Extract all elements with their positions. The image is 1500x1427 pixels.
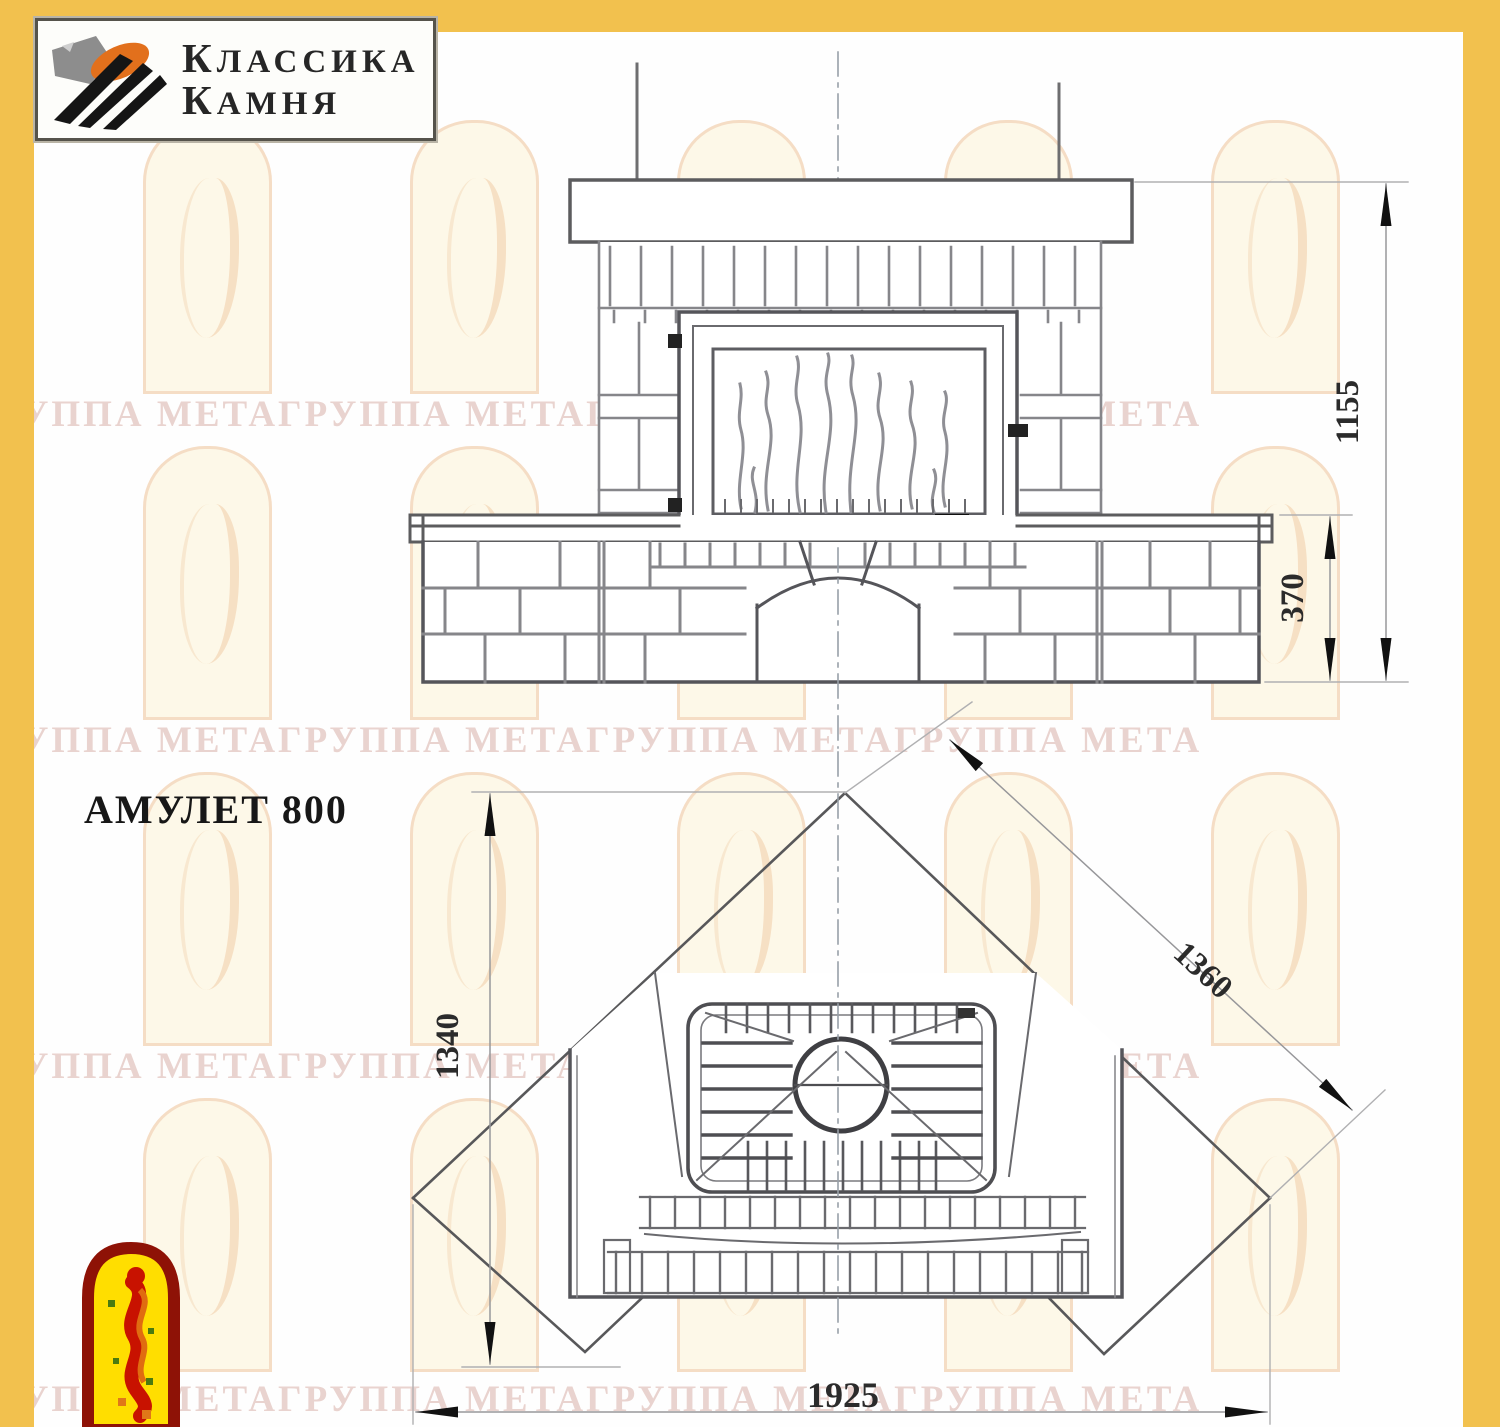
door-hinge-top <box>668 334 682 348</box>
page-frame-right <box>1463 0 1500 1427</box>
plan-firebox <box>688 1004 995 1192</box>
base <box>423 542 1259 682</box>
door-handle <box>1008 424 1028 437</box>
dim-label-1340: 1340 <box>430 1013 466 1079</box>
chimney-pipes <box>637 64 1059 180</box>
firebox-door <box>668 312 1028 548</box>
model-title: АМУЛЕТ 800 <box>84 786 348 833</box>
brand-stones-icon <box>38 28 178 132</box>
dim-label-370: 370 <box>1275 573 1311 623</box>
jester-arch-logo <box>80 1240 182 1427</box>
dim-label-1925: 1925 <box>807 1375 879 1415</box>
brand-name-line1: КЛАССИКА <box>182 38 420 80</box>
drawing-sheet: ГРУППА МЕТАГРУППА МЕТАГРУППА МЕТАГРУППА … <box>0 0 1500 1427</box>
page-frame-left <box>0 0 34 1427</box>
bench-slab <box>410 515 1272 542</box>
dim-label-1155: 1155 <box>1330 380 1366 444</box>
front-elevation: 1155 370 <box>410 52 1408 748</box>
brand-name-line2: КАМНЯ <box>182 80 420 122</box>
firebox-mark <box>958 1008 975 1018</box>
plan-view: 1340 1360 1925 <box>413 702 1385 1424</box>
door-hinge-bottom <box>668 498 682 512</box>
fireplace-technical-drawing: 1155 370 <box>0 0 1500 1427</box>
mantel-shelf <box>570 180 1132 242</box>
brand-logo: КЛАССИКА КАМНЯ <box>35 18 436 141</box>
